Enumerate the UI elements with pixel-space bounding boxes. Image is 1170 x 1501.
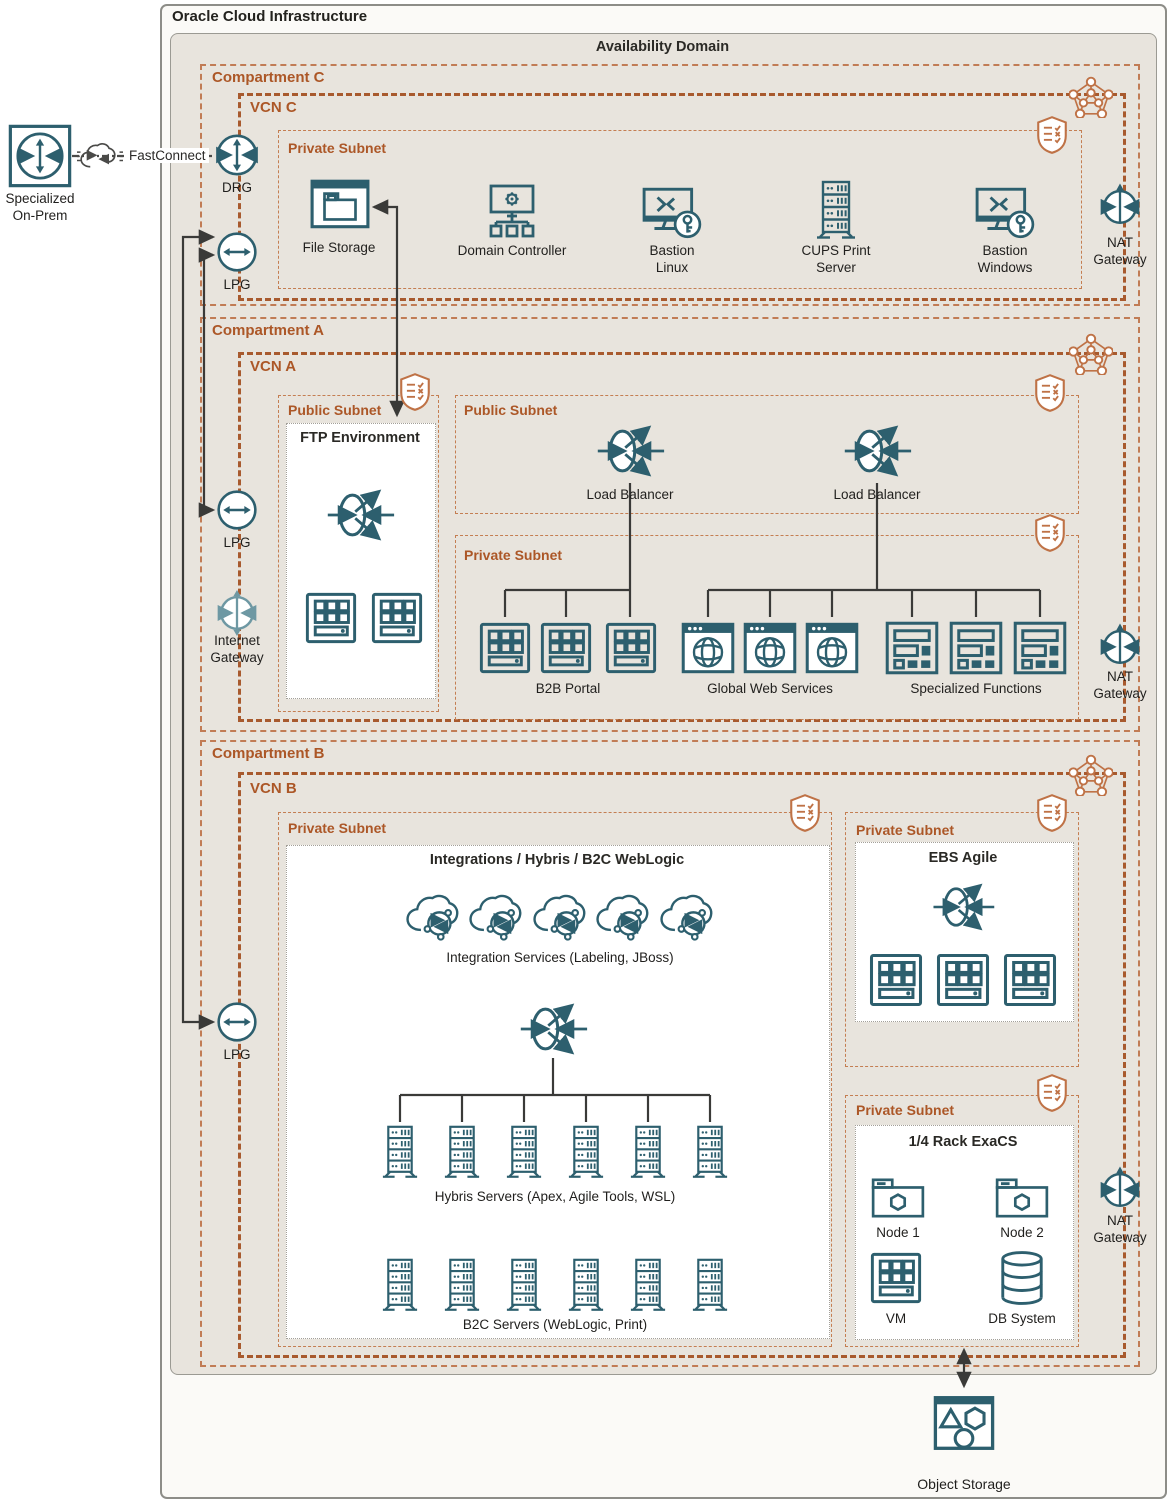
file-storage-label: File Storage: [279, 239, 399, 256]
server-rack-icon: [568, 1256, 604, 1314]
fastconnect-icon: [77, 140, 123, 174]
instance-icon: [478, 621, 532, 675]
security-list-icon: [1033, 513, 1067, 553]
internet-gateway-label: Internet Gateway: [197, 632, 277, 667]
security-list-icon: [1035, 1073, 1069, 1113]
database-icon: [997, 1250, 1047, 1306]
b2b-portal-label: B2B Portal: [508, 680, 628, 697]
lpg-icon-bottom: [215, 1000, 259, 1044]
instance-icon: [604, 621, 658, 675]
hybris-servers-caption: Hybris Servers (Apex, Agile Tools, WSL): [355, 1188, 755, 1205]
internet-gateway-icon: [214, 588, 260, 638]
node-1-label: Node 1: [858, 1224, 938, 1241]
nat-gateway-a-icon: [1097, 620, 1143, 670]
lpg-top-label: LPG: [207, 276, 267, 293]
cups-print-server-label: CUPS Print Server: [786, 242, 886, 277]
bastion-windows-label: Bastion Windows: [965, 242, 1045, 277]
security-list-icon: [1033, 373, 1067, 413]
load-balancer-icon: [517, 998, 589, 1060]
server-rack-icon: [692, 1256, 728, 1314]
load-balancer-icon: [841, 420, 913, 482]
vcn-icon: [1069, 76, 1113, 118]
integration-services-caption: Integration Services (Labeling, JBoss): [380, 949, 740, 966]
public-subnet-lb-label: Public Subnet: [464, 402, 557, 418]
server-rack-icon: [568, 1123, 604, 1181]
vm-label: VM: [856, 1310, 936, 1327]
bastion-windows-icon: [974, 186, 1036, 240]
node-folder-icon: [869, 1176, 927, 1220]
node-2-label: Node 2: [982, 1224, 1062, 1241]
file-storage-icon: [309, 178, 371, 232]
load-balancer-2-label: Load Balancer: [817, 486, 937, 503]
browser-globe-icon: [680, 620, 736, 676]
server-rack-icon: [630, 1256, 666, 1314]
browser-globe-icon: [742, 620, 798, 676]
security-list-icon: [1035, 793, 1069, 833]
lpg-bottom-label: LPG: [207, 1046, 267, 1063]
bastion-linux-icon: [641, 186, 703, 240]
server-rack-icon: [382, 1123, 418, 1181]
nat-gateway-c-label: NAT Gateway: [1082, 234, 1158, 269]
private-subnet-ebs-label: Private Subnet: [856, 822, 954, 838]
drg-label: DRG: [207, 179, 267, 196]
lpg-icon-top: [215, 230, 259, 274]
nat-gateway-b-icon: [1097, 1163, 1143, 1213]
load-balancer-icon: [324, 484, 396, 546]
private-subnet-integrations-label: Private Subnet: [288, 820, 386, 836]
vcn-c-label: VCN C: [250, 99, 297, 116]
cups-print-server-icon: [816, 180, 856, 240]
compartment-c-label: Compartment C: [212, 69, 325, 86]
load-balancer-icon: [930, 878, 996, 936]
security-list-icon: [788, 793, 822, 833]
instance-icon: [868, 952, 924, 1008]
b2c-servers-caption: B2C Servers (WebLogic, Print): [355, 1316, 755, 1333]
load-balancer-1-label: Load Balancer: [570, 486, 690, 503]
integration-cloud-icon: [593, 893, 651, 941]
nat-gateway-c-icon: [1097, 180, 1143, 230]
domain-controller-icon: [482, 184, 542, 240]
vm-instance-icon: [869, 1251, 923, 1305]
availability-domain-title: Availability Domain: [170, 39, 1155, 55]
private-subnet-exacs-label: Private Subnet: [856, 1102, 954, 1118]
server-rack-icon: [692, 1123, 728, 1181]
lpg-mid-label: LPG: [207, 534, 267, 551]
vcn-b-label: VCN B: [250, 780, 297, 797]
vcn-icon: [1069, 754, 1113, 796]
nat-gateway-a-label: NAT Gateway: [1082, 668, 1158, 703]
ftp-environment-box: [286, 423, 436, 699]
on-prem-icon: [8, 124, 72, 188]
integration-cloud-icon: [530, 893, 588, 941]
compartment-b-label: Compartment B: [212, 745, 325, 762]
drg-icon: [214, 132, 260, 178]
security-list-icon: [398, 372, 432, 412]
private-subnet-c-label: Private Subnet: [288, 140, 386, 156]
object-storage-label: Object Storage: [904, 1476, 1024, 1494]
instance-icon: [539, 621, 593, 675]
specialized-function-icon: [948, 620, 1004, 676]
ebs-agile-title: EBS Agile: [873, 850, 1053, 866]
vcn-icon: [1069, 333, 1113, 375]
specialized-functions-label: Specialized Functions: [886, 680, 1066, 697]
lpg-icon-mid: [215, 488, 259, 532]
load-balancer-icon: [594, 420, 666, 482]
object-storage-icon: [927, 1390, 1001, 1456]
instance-icon: [370, 591, 424, 645]
server-rack-icon: [444, 1256, 480, 1314]
on-prem-label: Specialized On-Prem: [0, 190, 82, 225]
instance-icon: [935, 952, 991, 1008]
server-rack-icon: [506, 1123, 542, 1181]
domain-controller-label: Domain Controller: [457, 242, 567, 259]
integration-cloud-icon: [403, 893, 461, 941]
oci-title: Oracle Cloud Infrastructure: [172, 8, 367, 25]
security-list-icon: [1035, 115, 1069, 155]
browser-globe-icon: [804, 620, 860, 676]
server-rack-icon: [630, 1123, 666, 1181]
instance-icon: [1002, 952, 1058, 1008]
exacs-title: 1/4 Rack ExaCS: [873, 1134, 1053, 1150]
ftp-environment-title: FTP Environment: [292, 430, 428, 446]
vcn-a-label: VCN A: [250, 358, 296, 375]
oci-architecture-diagram: Oracle Cloud Infrastructure Availability…: [0, 0, 1170, 1501]
compartment-a-label: Compartment A: [212, 322, 324, 339]
public-subnet-ftp-label: Public Subnet: [288, 402, 381, 418]
db-system-label: DB System: [972, 1310, 1072, 1327]
integration-cloud-icon: [466, 893, 524, 941]
node-folder-icon: [993, 1176, 1051, 1220]
fastconnect-label: FastConnect: [126, 148, 209, 163]
server-rack-icon: [506, 1256, 542, 1314]
integrations-box-title: Integrations / Hybris / B2C WebLogic: [292, 852, 822, 868]
instance-icon: [304, 591, 358, 645]
specialized-function-icon: [1012, 620, 1068, 676]
bastion-linux-label: Bastion Linux: [637, 242, 707, 277]
server-rack-icon: [444, 1123, 480, 1181]
private-subnet-a-label: Private Subnet: [464, 547, 562, 563]
global-web-services-label: Global Web Services: [690, 680, 850, 697]
nat-gateway-b-label: NAT Gateway: [1082, 1212, 1158, 1247]
specialized-function-icon: [884, 620, 940, 676]
server-rack-icon: [382, 1256, 418, 1314]
integration-cloud-icon: [657, 893, 715, 941]
